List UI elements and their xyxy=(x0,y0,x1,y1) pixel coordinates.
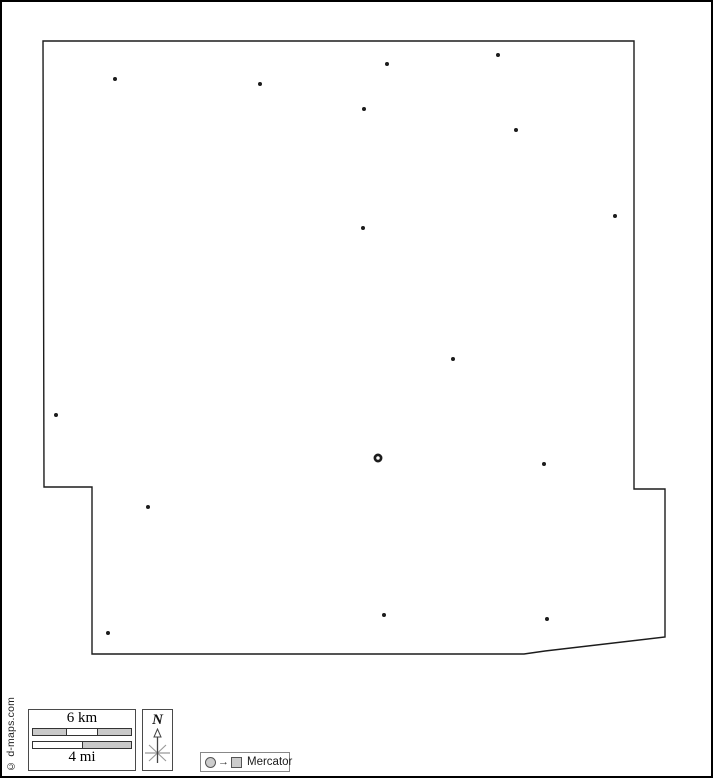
scale-km-label: 6 km xyxy=(29,710,135,727)
north-label: N xyxy=(143,712,172,728)
city-marker xyxy=(258,82,262,86)
city-marker xyxy=(382,613,386,617)
city-marker xyxy=(542,462,546,466)
city-marker xyxy=(514,128,518,132)
city-marker xyxy=(496,53,500,57)
arrow-icon: → xyxy=(218,757,229,768)
scale-km-bar xyxy=(32,728,132,736)
city-marker xyxy=(113,77,117,81)
city-marker xyxy=(451,357,455,361)
region-outline xyxy=(43,41,665,654)
scale-bar: 6 km 4 mi xyxy=(28,709,136,771)
projection-label: Mercator xyxy=(247,756,292,768)
city-marker xyxy=(545,617,549,621)
credit-text: © d-maps.com xyxy=(5,698,17,772)
map-page: 6 km 4 mi N → Mercator © d-maps.com xyxy=(0,0,713,778)
square-icon xyxy=(231,757,242,768)
compass-arrow-icon xyxy=(143,728,172,768)
scale-mi-label: 4 mi xyxy=(29,749,135,766)
scale-segment-gray xyxy=(98,729,131,735)
city-marker xyxy=(362,107,366,111)
map-svg xyxy=(2,2,713,778)
scale-segment-white xyxy=(66,729,99,735)
city-marker xyxy=(613,214,617,218)
scale-segment-white xyxy=(33,742,82,748)
scale-segment-gray xyxy=(33,729,66,735)
city-marker xyxy=(146,505,150,509)
city-marker xyxy=(106,631,110,635)
capital-marker xyxy=(375,455,381,461)
scale-mi-bar xyxy=(32,741,132,749)
city-marker xyxy=(385,62,389,66)
projection-legend: → Mercator xyxy=(200,752,290,772)
circle-icon xyxy=(205,757,216,768)
scale-segment-gray xyxy=(82,742,131,748)
city-marker xyxy=(361,226,365,230)
city-marker xyxy=(54,413,58,417)
compass: N xyxy=(142,709,173,771)
